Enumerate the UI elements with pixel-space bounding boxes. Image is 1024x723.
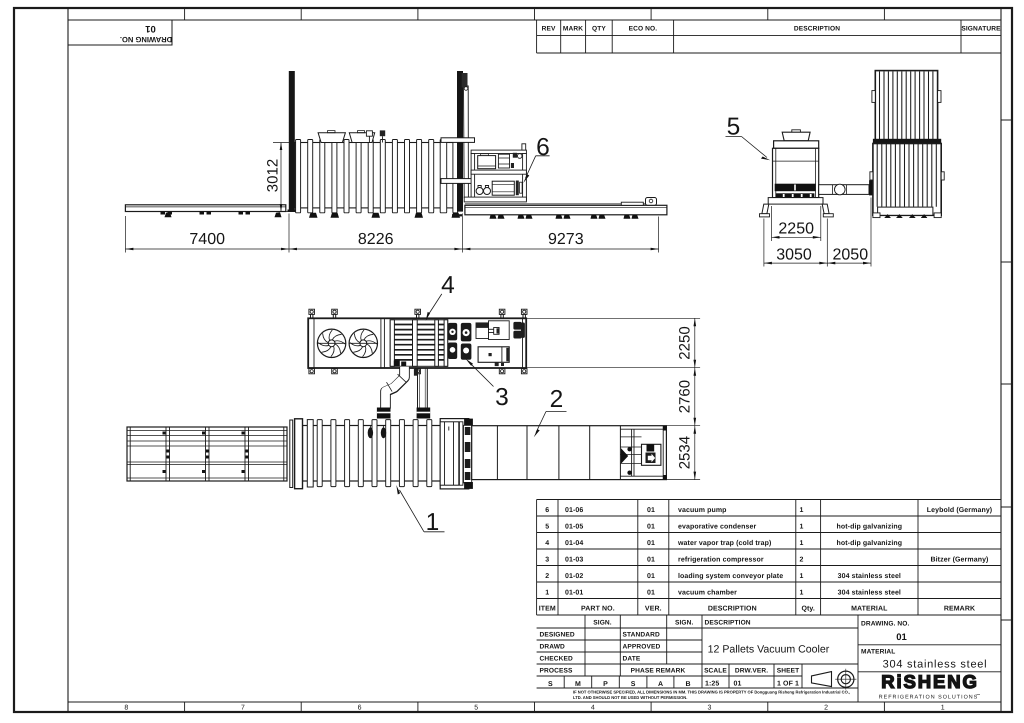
svg-text:S: S xyxy=(631,681,636,688)
svg-text:hot-dip galvanizing: hot-dip galvanizing xyxy=(836,539,902,547)
svg-text:DESCRIPTION: DESCRIPTION xyxy=(794,26,840,33)
svg-text:SIGNATURE: SIGNATURE xyxy=(961,26,1001,33)
svg-text:REMARK: REMARK xyxy=(944,606,975,613)
svg-text:01: 01 xyxy=(647,573,655,580)
svg-text:2: 2 xyxy=(550,386,564,413)
svg-text:1: 1 xyxy=(800,573,804,580)
svg-text:1: 1 xyxy=(800,524,804,531)
svg-text:01: 01 xyxy=(647,557,655,564)
svg-text:2250: 2250 xyxy=(778,221,814,238)
svg-text:SCALE: SCALE xyxy=(704,668,727,675)
svg-text:5: 5 xyxy=(474,705,478,712)
svg-text:refrigeration compressor: refrigeration compressor xyxy=(678,556,764,564)
svg-text:vacuum chamber: vacuum chamber xyxy=(678,589,737,597)
svg-text:4: 4 xyxy=(441,272,455,299)
svg-text:01: 01 xyxy=(647,590,655,597)
svg-text:DESCRIPTION: DESCRIPTION xyxy=(705,619,751,626)
svg-text:01: 01 xyxy=(647,524,655,531)
svg-text:2: 2 xyxy=(824,705,828,712)
svg-text:2: 2 xyxy=(545,573,549,580)
svg-text:REFRIGERATION SOLUTIONS: REFRIGERATION SOLUTIONS xyxy=(879,695,979,701)
svg-text:01-05: 01-05 xyxy=(565,524,583,531)
svg-text:7: 7 xyxy=(241,705,245,712)
svg-text:vacuum pump: vacuum pump xyxy=(678,507,727,514)
svg-text:3: 3 xyxy=(495,384,509,411)
svg-text:8226: 8226 xyxy=(358,231,394,248)
svg-text:loading system conveyor plate: loading system conveyor plate xyxy=(678,572,783,580)
svg-text:3: 3 xyxy=(545,557,549,564)
svg-text:6: 6 xyxy=(545,507,549,514)
svg-text:5: 5 xyxy=(545,524,549,531)
svg-text:1: 1 xyxy=(545,590,549,597)
svg-text:PART NO.: PART NO. xyxy=(581,606,615,613)
svg-text:DRW.VER.: DRW.VER. xyxy=(735,668,768,675)
svg-text:ITEM: ITEM xyxy=(539,606,556,613)
svg-text:P: P xyxy=(603,681,608,688)
svg-text:SHEET: SHEET xyxy=(777,668,799,675)
svg-text:RiSHENG: RiSHENG xyxy=(881,671,979,692)
svg-text:8: 8 xyxy=(124,705,128,712)
svg-text:DATE: DATE xyxy=(623,656,641,663)
svg-text:1: 1 xyxy=(800,540,804,547)
svg-text:3: 3 xyxy=(707,705,711,712)
svg-text:304 stainless steel: 304 stainless steel xyxy=(838,589,901,597)
svg-text:SIGN.: SIGN. xyxy=(593,619,612,626)
svg-text:01-04: 01-04 xyxy=(565,540,583,547)
svg-text:DRAWING NO.: DRAWING NO. xyxy=(120,35,172,44)
svg-text:DESIGNED: DESIGNED xyxy=(540,632,575,639)
svg-text:1:25: 1:25 xyxy=(705,680,719,687)
svg-text:304 stainless steel: 304 stainless steel xyxy=(883,659,988,671)
svg-text:01: 01 xyxy=(647,540,655,547)
svg-text:LTD. AND SHOULD NOT BE USED WI: LTD. AND SHOULD NOT BE USED WITHOUT PERM… xyxy=(573,695,687,700)
svg-text:6: 6 xyxy=(536,134,550,161)
svg-text:304 stainless steel: 304 stainless steel xyxy=(838,572,901,580)
svg-text:CHECKED: CHECKED xyxy=(540,656,573,663)
svg-text:2: 2 xyxy=(800,557,804,564)
svg-text:01: 01 xyxy=(145,23,156,34)
svg-text:REV: REV xyxy=(542,26,556,33)
svg-text:DRAWING. NO.: DRAWING. NO. xyxy=(861,621,910,628)
svg-text:MARK: MARK xyxy=(563,26,583,33)
svg-text:4: 4 xyxy=(591,705,595,712)
svg-text:2760: 2760 xyxy=(677,380,694,413)
svg-text:hot-dip galvanizing: hot-dip galvanizing xyxy=(836,523,902,531)
svg-text:9273: 9273 xyxy=(548,231,584,248)
svg-text:A: A xyxy=(658,681,663,688)
svg-text:Bitzer (Germany): Bitzer (Germany) xyxy=(930,556,988,564)
svg-text:DRAWD: DRAWD xyxy=(540,644,566,651)
svg-text:01-02: 01-02 xyxy=(565,573,583,580)
svg-text:QTY: QTY xyxy=(592,26,606,33)
svg-text:1: 1 xyxy=(800,507,804,514)
svg-text:STANDARD: STANDARD xyxy=(623,632,660,639)
svg-text:MATERIAL: MATERIAL xyxy=(851,606,888,613)
svg-text:M: M xyxy=(575,681,581,688)
svg-text:01-01: 01-01 xyxy=(565,590,583,597)
svg-text:01-03: 01-03 xyxy=(565,557,583,564)
svg-text:01: 01 xyxy=(734,680,742,687)
svg-text:DESCRIPTION: DESCRIPTION xyxy=(708,606,757,613)
svg-text:1: 1 xyxy=(941,705,945,712)
svg-text:SIGN.: SIGN. xyxy=(675,619,694,626)
svg-text:2050: 2050 xyxy=(833,246,869,263)
svg-text:MATERIAL: MATERIAL xyxy=(861,649,895,656)
svg-text:6: 6 xyxy=(358,705,362,712)
svg-text:12 Pallets Vacuum Cooler: 12 Pallets Vacuum Cooler xyxy=(708,643,830,655)
svg-text:PROCESS: PROCESS xyxy=(540,668,573,675)
svg-text:2534: 2534 xyxy=(677,436,694,469)
svg-text:01-06: 01-06 xyxy=(565,507,583,514)
svg-text:4: 4 xyxy=(545,540,549,547)
svg-text:PHASE REMARK: PHASE REMARK xyxy=(631,668,686,675)
svg-text:Qty.: Qty. xyxy=(801,606,815,613)
svg-text:evaporative condenser: evaporative condenser xyxy=(678,523,757,531)
svg-text:3050: 3050 xyxy=(776,246,812,263)
svg-text:1: 1 xyxy=(800,590,804,597)
svg-text:01: 01 xyxy=(647,507,655,514)
svg-text:B: B xyxy=(686,681,691,688)
svg-text:7400: 7400 xyxy=(189,231,225,248)
svg-text:1 OF 1: 1 OF 1 xyxy=(777,680,799,687)
svg-text:2250: 2250 xyxy=(677,326,694,359)
svg-text:01: 01 xyxy=(896,632,907,643)
svg-text:water vapor trap (cold trap): water vapor trap (cold trap) xyxy=(677,539,771,547)
svg-text:ECO NO.: ECO NO. xyxy=(629,26,658,33)
svg-text:Leybold (Germany): Leybold (Germany) xyxy=(927,506,993,514)
svg-text:3012: 3012 xyxy=(265,159,282,192)
svg-text:S: S xyxy=(548,681,553,688)
svg-text:IF NOT OTHERWISE SPECIFIED, AL: IF NOT OTHERWISE SPECIFIED, ALL DIMENSIO… xyxy=(573,690,850,695)
svg-text:APPROVED: APPROVED xyxy=(623,644,661,651)
svg-text:VER.: VER. xyxy=(645,606,662,613)
